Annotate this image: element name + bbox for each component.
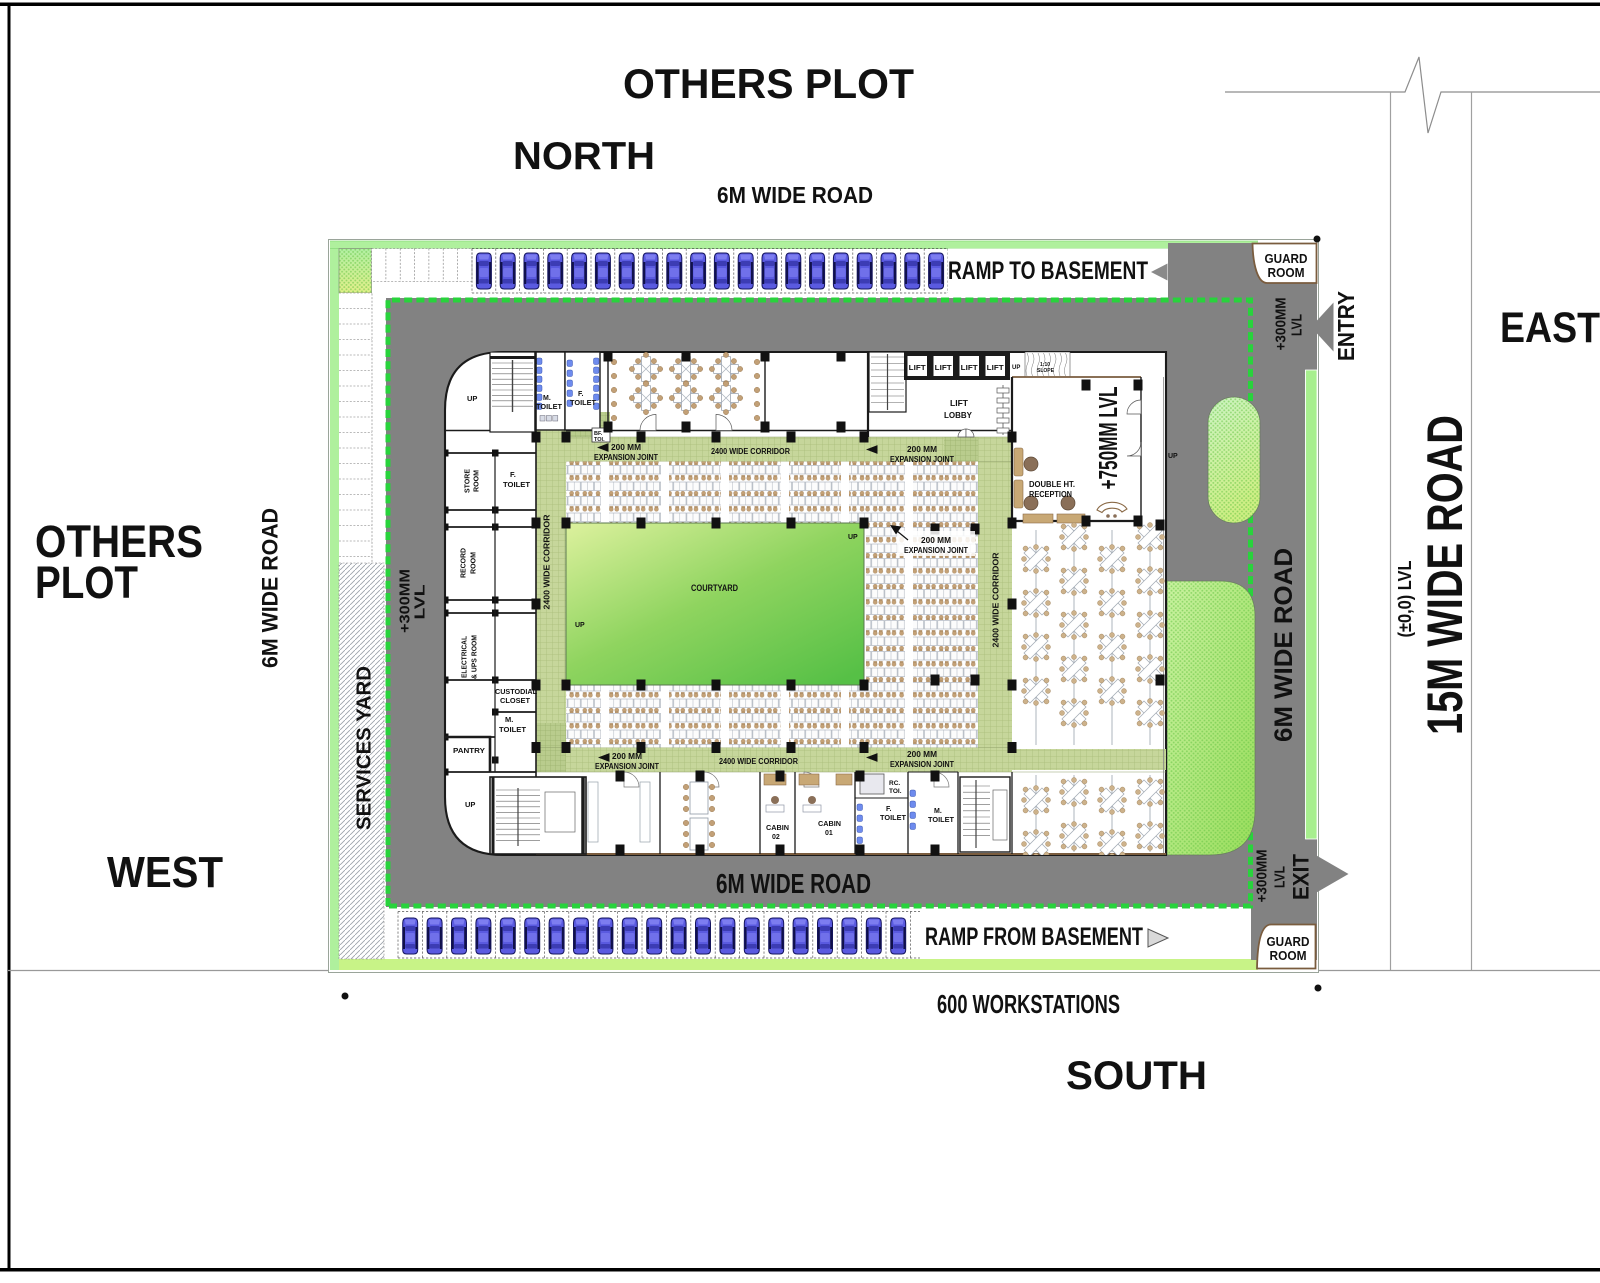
svg-text:LOBBY: LOBBY <box>944 410 972 420</box>
svg-text:+300MM: +300MM <box>1273 298 1290 351</box>
svg-text:F.: F. <box>578 391 584 398</box>
svg-text:LIFT: LIFT <box>950 398 969 408</box>
svg-text:200 MM: 200 MM <box>907 750 937 759</box>
svg-text:PLOT: PLOT <box>35 557 138 608</box>
svg-text:CLOSET: CLOSET <box>500 696 530 705</box>
svg-text:SLOPE: SLOPE <box>1037 368 1055 374</box>
svg-text:200 MM: 200 MM <box>611 443 641 452</box>
svg-text:UP: UP <box>465 800 475 809</box>
svg-text:EXPANSION JOINT: EXPANSION JOINT <box>890 760 954 769</box>
svg-text:EXPANSION JOINT: EXPANSION JOINT <box>890 455 954 464</box>
svg-text:(±0,0) LVL: (±0,0) LVL <box>1395 561 1415 638</box>
svg-text:M.: M. <box>543 395 551 402</box>
svg-text:SOUTH: SOUTH <box>1066 1054 1207 1098</box>
svg-text:F.: F. <box>886 806 892 813</box>
svg-text:LVL: LVL <box>1272 866 1289 888</box>
svg-text:EAST: EAST <box>1500 304 1600 352</box>
svg-text:600 WORKSTATIONS: 600 WORKSTATIONS <box>937 989 1120 1019</box>
svg-text:ROOM: ROOM <box>469 552 478 574</box>
svg-text:6M WIDE ROAD: 6M WIDE ROAD <box>1270 548 1298 742</box>
svg-text:EXPANSION JOINT: EXPANSION JOINT <box>595 762 659 771</box>
svg-text:TOILET: TOILET <box>499 725 526 734</box>
svg-text:TOILET: TOILET <box>536 404 563 411</box>
svg-text:ELECTRICAL: ELECTRICAL <box>460 636 469 678</box>
svg-text:200 MM: 200 MM <box>921 536 951 545</box>
svg-text:RAMP FROM BASEMENT: RAMP FROM BASEMENT <box>925 923 1143 951</box>
svg-text:EXPANSION JOINT: EXPANSION JOINT <box>904 546 968 555</box>
svg-text:+300MM: +300MM <box>1254 850 1271 903</box>
svg-text:200 MM: 200 MM <box>907 445 937 454</box>
svg-text:WEST: WEST <box>107 848 223 897</box>
svg-text:200 MM: 200 MM <box>612 752 642 761</box>
svg-text:GUARD: GUARD <box>1265 252 1308 266</box>
svg-text:LIFT: LIFT <box>935 363 952 372</box>
svg-text:LIFT: LIFT <box>909 363 926 372</box>
svg-text:RECEPTION: RECEPTION <box>1029 490 1072 499</box>
svg-text:15M WIDE ROAD: 15M WIDE ROAD <box>1417 415 1473 735</box>
svg-text:OTHERS PLOT: OTHERS PLOT <box>623 60 914 107</box>
svg-text:DOUBLE HT.: DOUBLE HT. <box>1029 480 1075 489</box>
svg-text:ROOM: ROOM <box>1268 266 1305 280</box>
svg-text:UP: UP <box>467 394 477 403</box>
svg-text:02: 02 <box>772 834 780 841</box>
svg-text:ROOM: ROOM <box>472 470 481 492</box>
svg-text:TOILET: TOILET <box>880 815 907 822</box>
svg-text:UP: UP <box>1168 453 1178 460</box>
svg-text:6M WIDE ROAD: 6M WIDE ROAD <box>258 508 283 668</box>
svg-text:ROOM: ROOM <box>1270 949 1307 963</box>
svg-text:LVL: LVL <box>1289 314 1306 336</box>
svg-text:TOI.: TOI. <box>889 788 902 795</box>
svg-text:F.: F. <box>510 470 516 479</box>
svg-text:2400 WIDE CORRIDOR: 2400 WIDE CORRIDOR <box>543 514 552 609</box>
svg-text:UP: UP <box>848 534 858 541</box>
svg-text:RECORD: RECORD <box>459 547 468 578</box>
svg-text:ENTRY: ENTRY <box>1333 291 1359 361</box>
svg-text:TOILET: TOILET <box>503 480 530 489</box>
svg-text:LIFT: LIFT <box>961 363 978 372</box>
svg-text:UP: UP <box>1012 365 1020 371</box>
svg-text:2400 WIDE CORRIDOR: 2400 WIDE CORRIDOR <box>992 552 1001 647</box>
svg-text:6M WIDE ROAD: 6M WIDE ROAD <box>716 868 871 899</box>
svg-text:M.: M. <box>934 808 942 815</box>
svg-text:2400 WIDE CORRIDOR: 2400 WIDE CORRIDOR <box>711 447 790 456</box>
svg-text:COURTYARD: COURTYARD <box>691 583 738 594</box>
svg-text:EXPANSION JOINT: EXPANSION JOINT <box>594 453 658 462</box>
svg-text:TOILET: TOILET <box>928 817 955 824</box>
svg-text:RC.: RC. <box>889 780 900 787</box>
svg-text:RAMP TO BASEMENT: RAMP TO BASEMENT <box>948 257 1148 285</box>
svg-text:2400 WIDE CORRIDOR: 2400 WIDE CORRIDOR <box>719 757 798 766</box>
svg-text:CABIN: CABIN <box>766 825 789 832</box>
svg-text:01: 01 <box>825 830 833 837</box>
svg-text:CUSTODIAL: CUSTODIAL <box>495 687 537 696</box>
svg-text:STORE: STORE <box>463 469 472 493</box>
svg-text:UP: UP <box>575 622 585 629</box>
svg-text:+750MM LVL: +750MM LVL <box>1093 386 1123 489</box>
svg-text:EXIT: EXIT <box>1289 853 1314 900</box>
svg-text:& UPS ROOM: & UPS ROOM <box>470 635 479 679</box>
svg-text:SERVICES YARD: SERVICES YARD <box>353 666 376 830</box>
svg-text:6M WIDE ROAD: 6M WIDE ROAD <box>717 182 873 208</box>
svg-text:TOILET: TOILET <box>570 400 597 407</box>
svg-text:GUARD: GUARD <box>1267 935 1310 949</box>
svg-text:CABIN: CABIN <box>818 821 841 828</box>
svg-text:TOI.: TOI. <box>594 437 605 443</box>
svg-text:LVL: LVL <box>412 585 429 620</box>
svg-text:PANTRY: PANTRY <box>453 746 485 755</box>
svg-text:NORTH: NORTH <box>513 135 655 178</box>
svg-text:M.: M. <box>505 715 513 724</box>
svg-text:LIFT: LIFT <box>987 363 1004 372</box>
